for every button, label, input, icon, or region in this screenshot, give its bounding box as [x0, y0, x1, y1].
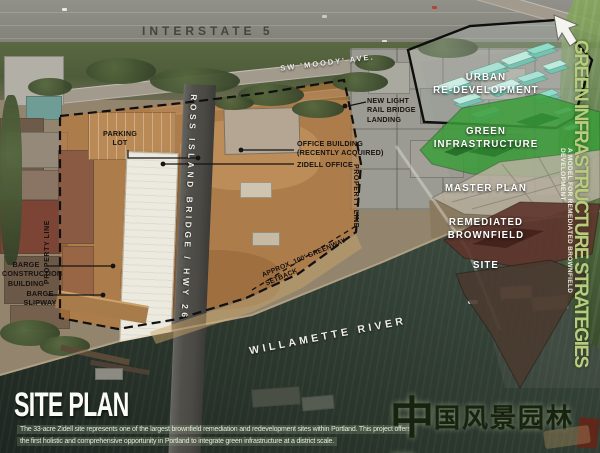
page-title: SITE PLAN	[14, 386, 129, 425]
diagram-label-site: SITE	[422, 259, 551, 272]
barge-building-callout: BARGE CONSTRUCTION BUILDING	[2, 260, 50, 288]
banner-subtitle: A MODEL FOR REMEDIATED BROWNFIELD DEVELO…	[559, 148, 573, 338]
property-line-label-right: PROPERTY LINE	[352, 164, 359, 228]
office-building-callout: OFFICE BUILDING (RECENTLY ACQUIRED)	[297, 139, 384, 158]
light-rail-callout: NEW LIGHT RAIL BRIDGE LANDING	[367, 96, 416, 124]
zidell-office-callout: ZIDELL OFFICE	[297, 160, 353, 169]
parking-lot-callout: PARKING LOT	[96, 129, 144, 148]
diagram-label-green-infrastructure: GREEN INFRASTRUCTURE	[422, 125, 551, 151]
page-description: The 33-acre Zidell site represents one o…	[17, 424, 417, 447]
barge-slipway-callout: BARGE SLIPWAY	[20, 289, 60, 308]
diagram-label-remediated-brownfield: REMEDIATED BROWNFIELD	[422, 216, 551, 242]
interstate-5-label: INTERSTATE 5	[142, 24, 274, 38]
diagram-label-master-plan: MASTER PLAN	[422, 182, 551, 195]
watermark-logo: 中	[390, 394, 434, 443]
property-boundary-dashed	[60, 80, 361, 329]
diagram-label-urban-redevelopment: URBAN RE-DEVELOPMENT	[422, 71, 551, 97]
site-plan-board: INTERSTATE 5 SW 'MOODY' AVE. ROSS ISLAND…	[0, 0, 600, 453]
